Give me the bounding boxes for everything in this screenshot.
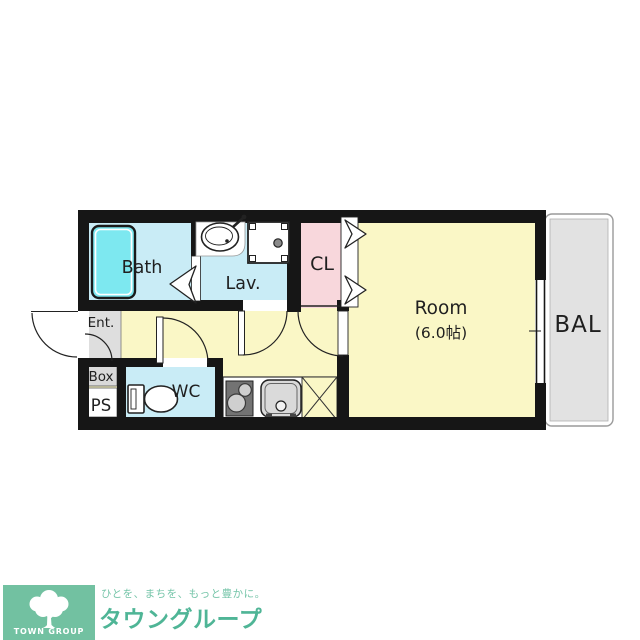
- floor-plan: Bath Lav. CL Room (6.0帖) BAL Ent. Box PS…: [0, 0, 640, 640]
- logo-square-text: TOWN GROUP: [14, 627, 84, 636]
- refrigerator-space-icon: [302, 377, 337, 420]
- box-label: Box: [88, 369, 113, 385]
- logo-brand-name: タウングループ: [99, 600, 262, 634]
- logo-tagline: ひとを、まちを、もっと豊かに。: [101, 586, 266, 601]
- washing-machine-icon: [248, 222, 289, 263]
- kitchen-counter: [223, 377, 338, 420]
- wc-label: WC: [172, 382, 201, 402]
- room-size-label: (6.0帖): [415, 324, 467, 342]
- bath-label: Bath: [122, 258, 163, 278]
- company-logo: TOWN GROUP ひとを、まちを、もっと豊かに。 タウングループ: [0, 583, 400, 640]
- floorplan-page: Bath Lav. CL Room (6.0帖) BAL Ent. Box PS…: [0, 0, 640, 640]
- room-label: Room: [415, 298, 468, 319]
- entrance-label: Ent.: [88, 315, 115, 331]
- closet-label: CL: [310, 253, 334, 275]
- logo-square: TOWN GROUP: [3, 585, 95, 640]
- tree-icon: [17, 587, 81, 629]
- ps-label: PS: [91, 396, 111, 415]
- toilet-icon: [128, 385, 178, 413]
- lav-label: Lav.: [225, 274, 260, 294]
- stove-icon: [226, 381, 253, 416]
- balcony-label: BAL: [554, 312, 601, 338]
- kitchen-sink-icon: [261, 380, 301, 418]
